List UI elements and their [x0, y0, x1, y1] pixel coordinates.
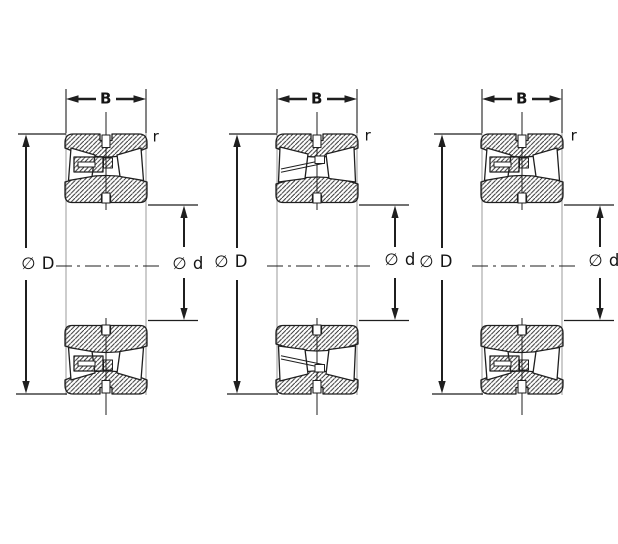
bearing-figure-1-drawing — [16, 89, 198, 415]
bearing-drawing-canvas: B r ∅ D ∅ d B r ∅ D ∅ d B r ∅ D ∅ d — [0, 0, 618, 544]
bearing-top-section — [65, 134, 147, 203]
fig3-corner-radius-label: r — [571, 129, 578, 144]
fig2-corner-radius-label: r — [365, 129, 372, 144]
fig2-width-dim-label: B — [311, 92, 323, 107]
bearing-bottom-section — [481, 325, 563, 394]
fig3-outer-diameter-label: ∅ D — [419, 254, 453, 271]
bearing-figure-2-drawing — [227, 89, 409, 415]
fig1-outer-diameter-label: ∅ D — [21, 256, 55, 273]
bearing-diagram — [0, 0, 618, 544]
bearing-bottom-section — [65, 325, 147, 394]
bearing-figure-3-drawing — [432, 89, 614, 415]
bearing-top-section — [481, 134, 563, 203]
fig1-bore-diameter-label: ∅ d — [172, 256, 204, 273]
fig3-bore-diameter-label: ∅ d — [588, 253, 618, 270]
fig1-corner-radius-label: r — [153, 130, 160, 145]
fig3-width-dim-label: B — [516, 92, 528, 107]
fig2-bore-diameter-label: ∅ d — [384, 252, 416, 269]
fig1-width-dim-label: B — [100, 92, 112, 107]
fig2-outer-diameter-label: ∅ D — [214, 254, 248, 271]
